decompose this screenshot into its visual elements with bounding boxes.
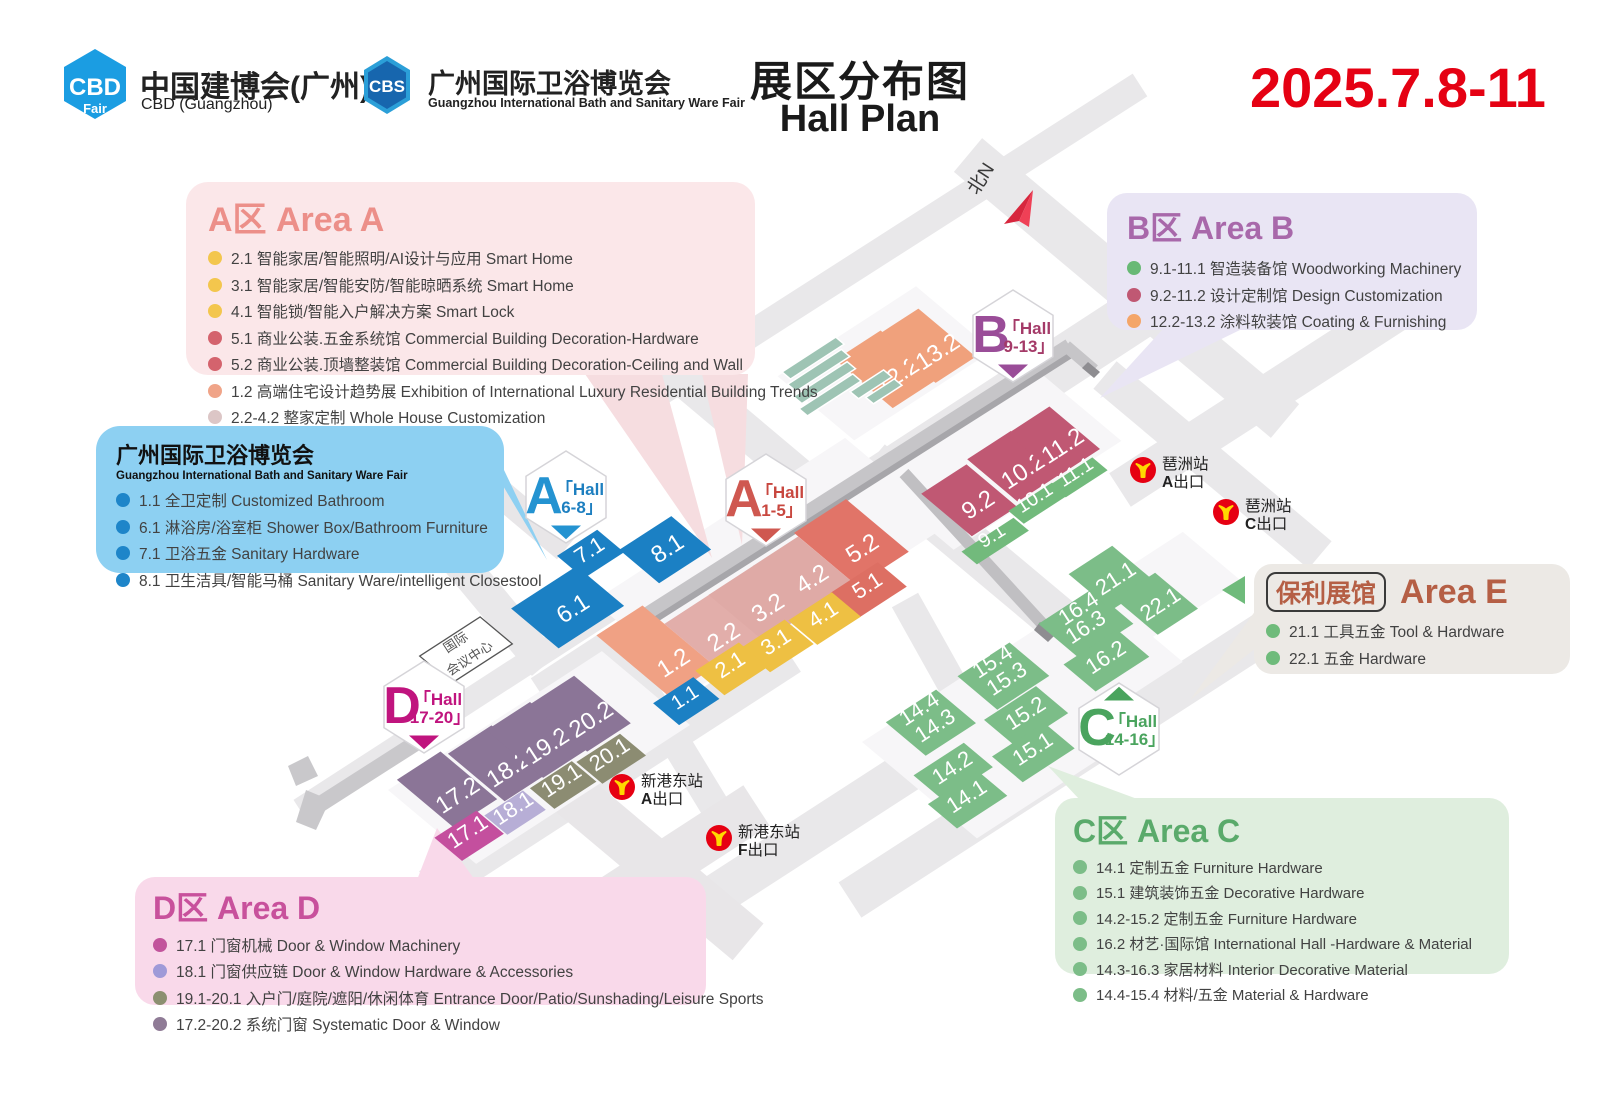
svg-text:琶洲站: 琶洲站	[1245, 497, 1292, 515]
svg-text:14-16」: 14-16」	[1105, 730, 1165, 749]
svg-text:琶洲站: 琶洲站	[1162, 455, 1209, 473]
svg-text:CBD: CBD	[69, 74, 121, 101]
svg-text:1-5」: 1-5」	[761, 501, 803, 520]
svg-text:新港东站: 新港东站	[738, 823, 800, 841]
svg-text:A出口: A出口	[641, 790, 683, 808]
svg-text:「Hall: 「Hall	[1109, 711, 1157, 731]
svg-text:「Hall: 「Hall	[414, 689, 462, 709]
svg-text:Fair: Fair	[83, 101, 107, 116]
svg-text:「Hall: 「Hall	[1003, 318, 1051, 338]
svg-text:9-13」: 9-13」	[1003, 337, 1054, 356]
svg-text:新港东站: 新港东站	[641, 772, 703, 790]
svg-text:17-20」: 17-20」	[410, 708, 470, 727]
svg-text:「Hall: 「Hall	[756, 482, 804, 502]
svg-text:A出口: A出口	[1162, 473, 1204, 491]
svg-text:6-8」: 6-8」	[561, 498, 603, 517]
svg-text:「Hall: 「Hall	[556, 479, 604, 499]
svg-text:CBS: CBS	[369, 77, 405, 96]
svg-text:F出口: F出口	[738, 841, 778, 859]
svg-text:C出口: C出口	[1245, 515, 1287, 533]
